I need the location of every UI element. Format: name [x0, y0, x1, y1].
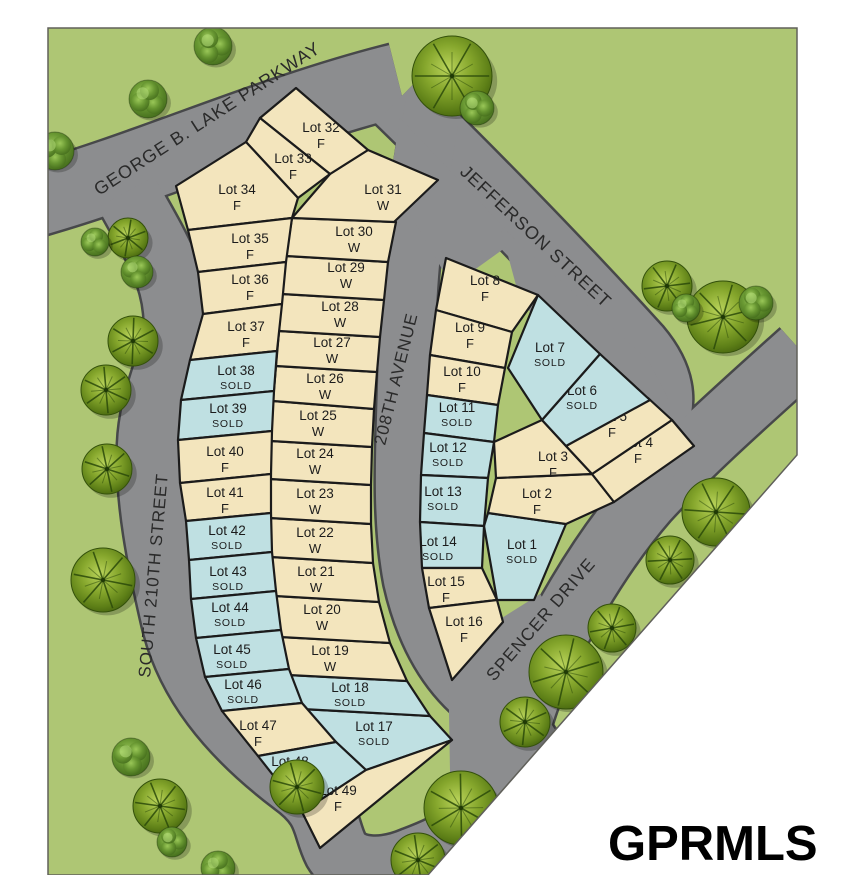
lot-status: W — [309, 462, 322, 477]
lot-status: F — [246, 288, 254, 303]
lot-status: W — [340, 276, 353, 291]
lot-status: SOLD — [216, 659, 248, 671]
lot-label: Lot 14 — [419, 534, 457, 549]
lot-label: Lot 38 — [217, 363, 255, 378]
lot-status: SOLD — [358, 736, 390, 748]
map-content: Lot 1SOLDLot 2FLot 3FLot 4FLot 5FLot 6SO… — [28, 27, 802, 875]
plat-map-page: Lot 1SOLDLot 2FLot 3FLot 4FLot 5FLot 6SO… — [0, 0, 853, 875]
lot-label: Lot 2 — [522, 486, 552, 501]
lot-lot-23: Lot 23W — [270, 479, 371, 524]
lot-label: Lot 45 — [213, 642, 251, 657]
lot-label: Lot 33 — [274, 151, 312, 166]
lot-label: Lot 17 — [355, 719, 393, 734]
lot-label: Lot 10 — [443, 364, 481, 379]
lot-lot-28: Lot 28W — [279, 294, 384, 337]
lot-status: F — [608, 425, 616, 440]
lot-status: W — [309, 502, 322, 517]
lot-label: Lot 29 — [327, 260, 365, 275]
lot-label: Lot 28 — [321, 299, 359, 314]
lot-label: Lot 47 — [239, 718, 277, 733]
lot-status: W — [348, 240, 361, 255]
lot-lot-12: Lot 12SOLD — [421, 433, 494, 478]
lot-lot-24: Lot 24W — [270, 441, 372, 485]
lot-lot-20: Lot 20W — [275, 596, 390, 643]
lot-label: Lot 7 — [535, 340, 565, 355]
lot-status: F — [442, 590, 450, 605]
lot-label: Lot 21 — [297, 564, 335, 579]
lot-status: F — [254, 734, 262, 749]
lot-lot-30: Lot 30W — [286, 218, 396, 262]
lot-status: SOLD — [432, 457, 464, 469]
lot-status: W — [326, 351, 339, 366]
lot-label: Lot 43 — [209, 564, 247, 579]
lot-status: SOLD — [506, 554, 538, 566]
lot-label: Lot 34 — [218, 182, 256, 197]
lot-lot-26: Lot 26W — [273, 366, 377, 409]
lot-status: W — [319, 387, 332, 402]
lot-label: Lot 12 — [429, 440, 467, 455]
lot-label: Lot 18 — [331, 680, 369, 695]
lot-status: F — [317, 136, 325, 151]
lot-label: Lot 46 — [224, 677, 262, 692]
lot-label: Lot 24 — [296, 446, 334, 461]
lot-status: W — [309, 541, 322, 556]
lot-label: Lot 20 — [303, 602, 341, 617]
lot-label: Lot 9 — [455, 320, 485, 335]
lot-status: F — [242, 335, 250, 350]
lot-label: Lot 37 — [227, 319, 265, 334]
lot-label: Lot 1 — [507, 537, 537, 552]
lot-status: W — [316, 618, 329, 633]
lot-status: SOLD — [211, 540, 243, 552]
lot-status: F — [246, 247, 254, 262]
lot-label: Lot 36 — [231, 272, 269, 287]
lot-status: F — [466, 336, 474, 351]
lot-label: Lot 16 — [445, 614, 483, 629]
lot-status: F — [334, 799, 342, 814]
lot-label: Lot 32 — [302, 120, 340, 135]
lot-label: Lot 41 — [206, 485, 244, 500]
lot-lot-21: Lot 21W — [271, 557, 379, 602]
lot-lot-22: Lot 22W — [270, 518, 373, 563]
lot-status: SOLD — [427, 501, 459, 513]
lot-status: SOLD — [227, 694, 259, 706]
lot-label: Lot 40 — [206, 444, 244, 459]
lot-status: W — [310, 580, 323, 595]
lot-status: W — [324, 659, 337, 674]
lot-label: Lot 25 — [299, 408, 337, 423]
lot-label: Lot 31 — [364, 182, 402, 197]
lot-status: F — [549, 465, 557, 480]
plat-map: Lot 1SOLDLot 2FLot 3FLot 4FLot 5FLot 6SO… — [0, 0, 853, 875]
lot-status: SOLD — [441, 417, 473, 429]
lot-label: Lot 22 — [296, 525, 334, 540]
lot-status: SOLD — [422, 551, 454, 563]
lot-status: W — [377, 198, 390, 213]
lot-status: F — [634, 451, 642, 466]
lot-status: F — [533, 502, 541, 517]
lot-status: F — [221, 460, 229, 475]
lot-label: Lot 11 — [439, 400, 476, 415]
lot-label: Lot 23 — [296, 486, 334, 501]
lot-status: F — [233, 198, 241, 213]
lot-status: SOLD — [220, 380, 252, 392]
lot-status: SOLD — [566, 400, 598, 412]
lot-status: F — [481, 289, 489, 304]
lot-label: Lot 39 — [209, 401, 247, 416]
lot-status: F — [221, 501, 229, 516]
lot-status: SOLD — [214, 617, 246, 629]
lot-lot-14: Lot 14SOLD — [419, 522, 484, 568]
lot-lot-29: Lot 29W — [282, 256, 388, 300]
lot-label: Lot 44 — [211, 600, 249, 615]
lot-label: Lot 13 — [424, 484, 462, 499]
lot-status: F — [460, 630, 468, 645]
lot-label: Lot 27 — [313, 335, 351, 350]
gprmls-logo: GPRMLS — [608, 816, 818, 872]
lot-status: SOLD — [334, 697, 366, 709]
lot-status: SOLD — [212, 581, 244, 593]
lot-status: F — [458, 380, 466, 395]
lot-label: Lot 30 — [335, 224, 373, 239]
lot-label: Lot 42 — [208, 523, 246, 538]
lot-status: W — [312, 424, 325, 439]
lot-label: Lot 8 — [470, 273, 500, 288]
lot-label: Lot 35 — [231, 231, 269, 246]
lot-status: SOLD — [212, 418, 244, 430]
lot-status: W — [334, 315, 347, 330]
lot-label: Lot 15 — [427, 574, 465, 589]
lot-label: Lot 3 — [538, 449, 568, 464]
lot-label: Lot 19 — [311, 643, 349, 658]
lot-lot-13: Lot 13SOLD — [420, 475, 488, 526]
lot-status: F — [289, 167, 297, 182]
lot-status: SOLD — [534, 357, 566, 369]
lot-label: Lot 26 — [306, 371, 344, 386]
